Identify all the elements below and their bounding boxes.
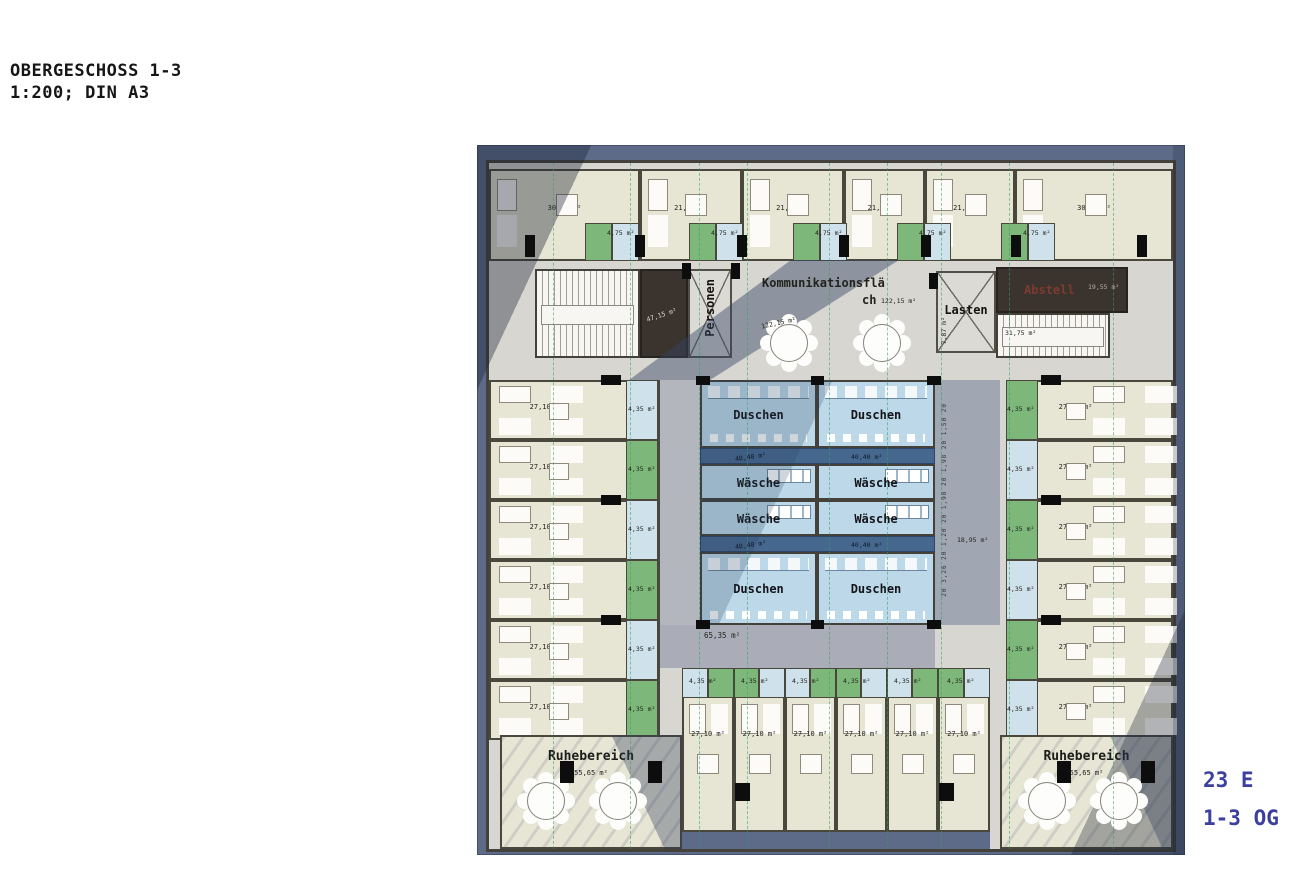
waesche-room-ne: Wäsche	[817, 464, 935, 500]
cast-shadow	[660, 380, 700, 625]
column-marker	[731, 263, 740, 279]
column-marker	[601, 495, 621, 505]
shaft-room-west: 47,15 m²	[640, 269, 688, 358]
column-marker	[1041, 615, 1061, 625]
stamp-floors: 1-3 OG	[1203, 808, 1279, 829]
column-marker	[648, 761, 662, 783]
waesche-label: Wäsche	[819, 512, 933, 526]
room-area-label: 27,10 m²	[435, 583, 658, 591]
waesche-room-nw: Wäsche	[700, 464, 817, 500]
duschen-label: Duschen	[702, 582, 815, 596]
room-area-label: 27,10 m²	[435, 703, 658, 711]
floor-plan: 30,50 m² 21,55 m² 21,55 m² 21,55 m² 21,0…	[477, 145, 1185, 855]
grid-line	[747, 163, 748, 849]
grid-line	[699, 163, 700, 849]
bath-area-label: 4,35 m²	[628, 705, 655, 713]
kommunikation-title-cont: ch	[862, 293, 876, 307]
column-marker	[939, 783, 954, 801]
column-marker	[927, 620, 941, 629]
plan-stamp: 23 E 1-3 OG	[1203, 770, 1279, 846]
grid-line	[630, 163, 631, 849]
column-marker	[1057, 761, 1071, 783]
bath-area-label: 4,35 m²	[1007, 405, 1034, 413]
elevator-personen: Personen	[688, 269, 732, 358]
room-area-label: 27,10 m²	[435, 643, 658, 651]
bath-area-label: 4,35 m²	[741, 677, 768, 685]
column-marker	[811, 376, 824, 385]
column-marker	[735, 783, 750, 801]
waesche-room-se: Wäsche	[817, 500, 935, 536]
dimension-chain: 20 3,26 20 1,20 20 1,98 20 1,98 20 1,50 …	[941, 403, 948, 597]
bath-area-label: 4,35 m²	[947, 677, 974, 685]
sanitary-corridor-north: 40,40 m² 40,40 m²	[700, 448, 935, 464]
grid-line	[553, 163, 554, 849]
bath-area-label: 4,35 m²	[792, 677, 819, 685]
duschen-label: Duschen	[702, 408, 815, 422]
duschen-room-se: Duschen	[817, 552, 935, 625]
room-area-label: 21,55 m²	[846, 204, 923, 212]
round-table	[863, 324, 901, 362]
shaft-area-label: 47,15 m²	[646, 306, 678, 323]
bath-area-label: 4,75 m²	[1023, 229, 1050, 237]
column-marker	[737, 235, 747, 257]
bath-area-label: 4,35 m²	[628, 525, 655, 533]
column-marker	[635, 235, 645, 257]
bath-area-label: 4,35 m²	[689, 677, 716, 685]
grid-line	[829, 163, 830, 849]
sanitary-area-label: 40,40 m²	[735, 451, 767, 463]
drawing-title: OBERGESCHOSS 1-3 1:200; DIN A3	[10, 60, 182, 104]
bath-area-label: 4,35 m²	[628, 645, 655, 653]
room-area-label: 27,10 m²	[940, 730, 988, 738]
room-area-label: 27,10 m²	[889, 730, 936, 738]
sanitary-area-label: 40,40 m²	[851, 453, 882, 461]
cast-shadow	[660, 625, 935, 668]
bath-area-label: 4,35 m²	[1007, 465, 1034, 473]
bath-area-label: 4,35 m²	[628, 465, 655, 473]
stamp-units: 23 E	[1203, 770, 1279, 791]
duschen-room-nw: Duschen	[700, 380, 817, 448]
abstell-room: Abstell 19,55 m²	[996, 267, 1128, 313]
sanitary-corridor-south: 40,40 m² 40,40 m²	[700, 536, 935, 552]
duschen-room-sw: Duschen	[700, 552, 817, 625]
column-marker	[1141, 761, 1155, 783]
room-area-label: 27,10 m²	[435, 403, 658, 411]
bath-area-label: 4,35 m²	[843, 677, 870, 685]
column-marker	[696, 620, 710, 629]
bath-area-label: 4,35 m²	[1007, 525, 1034, 533]
bath-area-label: 4,35 m²	[1007, 645, 1034, 653]
column-marker	[921, 235, 931, 257]
column-marker	[811, 620, 824, 629]
column-marker	[560, 761, 574, 783]
bath-area-label: 4,35 m²	[894, 677, 921, 685]
column-marker	[601, 615, 621, 625]
elevator-label: Personen	[703, 279, 717, 337]
column-marker	[525, 235, 535, 257]
stairs-area-label: 31,75 m²	[1003, 329, 1038, 337]
stairs-west	[535, 269, 640, 358]
column-marker	[682, 263, 691, 279]
sanitary-area-label: 40,40 m²	[851, 541, 882, 549]
column-marker	[696, 376, 710, 385]
kommunikation-area: 122,15 m²	[881, 297, 916, 305]
room-area-label: 27,10 m²	[787, 730, 834, 738]
elevator-lasten: Lasten 7,87 m²	[936, 271, 996, 353]
bath-area-label: 4,35 m²	[1007, 705, 1034, 713]
bath-area-label: 4,35 m²	[628, 405, 655, 413]
elevator-area-label: 7,87 m²	[940, 317, 948, 344]
bath-area-label: 4,75 m²	[815, 229, 842, 237]
bath-area-label: 4,35 m²	[628, 585, 655, 593]
bath-area-label: 4,75 m²	[711, 229, 738, 237]
waesche-label: Wäsche	[702, 512, 815, 526]
kommunikation-title: Kommunikationsflä	[762, 276, 885, 290]
waesche-label: Wäsche	[702, 476, 815, 490]
room-area-label: 27,10 m²	[736, 730, 783, 738]
column-marker	[1137, 235, 1147, 257]
column-marker	[927, 376, 941, 385]
title-line-1: OBERGESCHOSS 1-3	[10, 60, 182, 82]
corridor-east-area: 18,95 m²	[957, 536, 988, 544]
room-area-label: 21,55 m²	[642, 204, 740, 212]
column-marker	[839, 235, 849, 257]
elevator-label: Lasten	[938, 303, 994, 317]
room-area-label: 30,50 m²	[491, 204, 638, 212]
column-marker	[1011, 235, 1021, 257]
column-marker	[1041, 495, 1061, 505]
round-table	[599, 782, 637, 820]
duschen-label: Duschen	[819, 408, 933, 422]
waesche-label: Wäsche	[819, 476, 933, 490]
facade-strip-south	[682, 832, 990, 849]
room-area-label: 27,10 m²	[684, 730, 732, 738]
ruhebereich-west: Ruhebereich 55,65 m²	[500, 735, 682, 849]
room-area-label: 21,55 m²	[744, 204, 842, 212]
ruhebereich-east: Ruhebereich 55,65 m²	[1000, 735, 1173, 849]
corridor-south-area: 65,35 m²	[704, 631, 740, 640]
room-area-label: 27,10 m²	[838, 730, 885, 738]
floor-area: 30,50 m² 21,55 m² 21,55 m² 21,55 m² 21,0…	[489, 163, 1173, 849]
column-marker	[929, 273, 938, 289]
room-area-label: 30,50 m²	[1017, 204, 1171, 212]
round-table	[1028, 782, 1066, 820]
round-table	[527, 782, 565, 820]
bath-area-label: 4,75 m²	[607, 229, 634, 237]
room-area-label: 27,10 m²	[435, 523, 658, 531]
bath-area-label: 4,75 m²	[919, 229, 946, 237]
duschen-room-ne: Duschen	[817, 380, 935, 448]
round-table	[770, 324, 808, 362]
sanitary-area-label: 40,40 m²	[735, 539, 767, 551]
round-table	[1100, 782, 1138, 820]
column-marker	[1041, 375, 1061, 385]
waesche-room-sw: Wäsche	[700, 500, 817, 536]
grid-line	[1009, 163, 1010, 849]
title-line-2: 1:200; DIN A3	[10, 82, 182, 104]
grid-line	[1113, 163, 1114, 849]
grid-line	[887, 163, 888, 849]
room-area-label: 21,05 m²	[927, 204, 1013, 212]
abstell-area-label: 19,55 m²	[1088, 283, 1119, 291]
duschen-label: Duschen	[819, 582, 933, 596]
column-marker	[601, 375, 621, 385]
bath-area-label: 4,35 m²	[1007, 585, 1034, 593]
abstell-label: Abstell	[1024, 283, 1075, 297]
room-area-label: 27,10 m²	[435, 463, 658, 471]
